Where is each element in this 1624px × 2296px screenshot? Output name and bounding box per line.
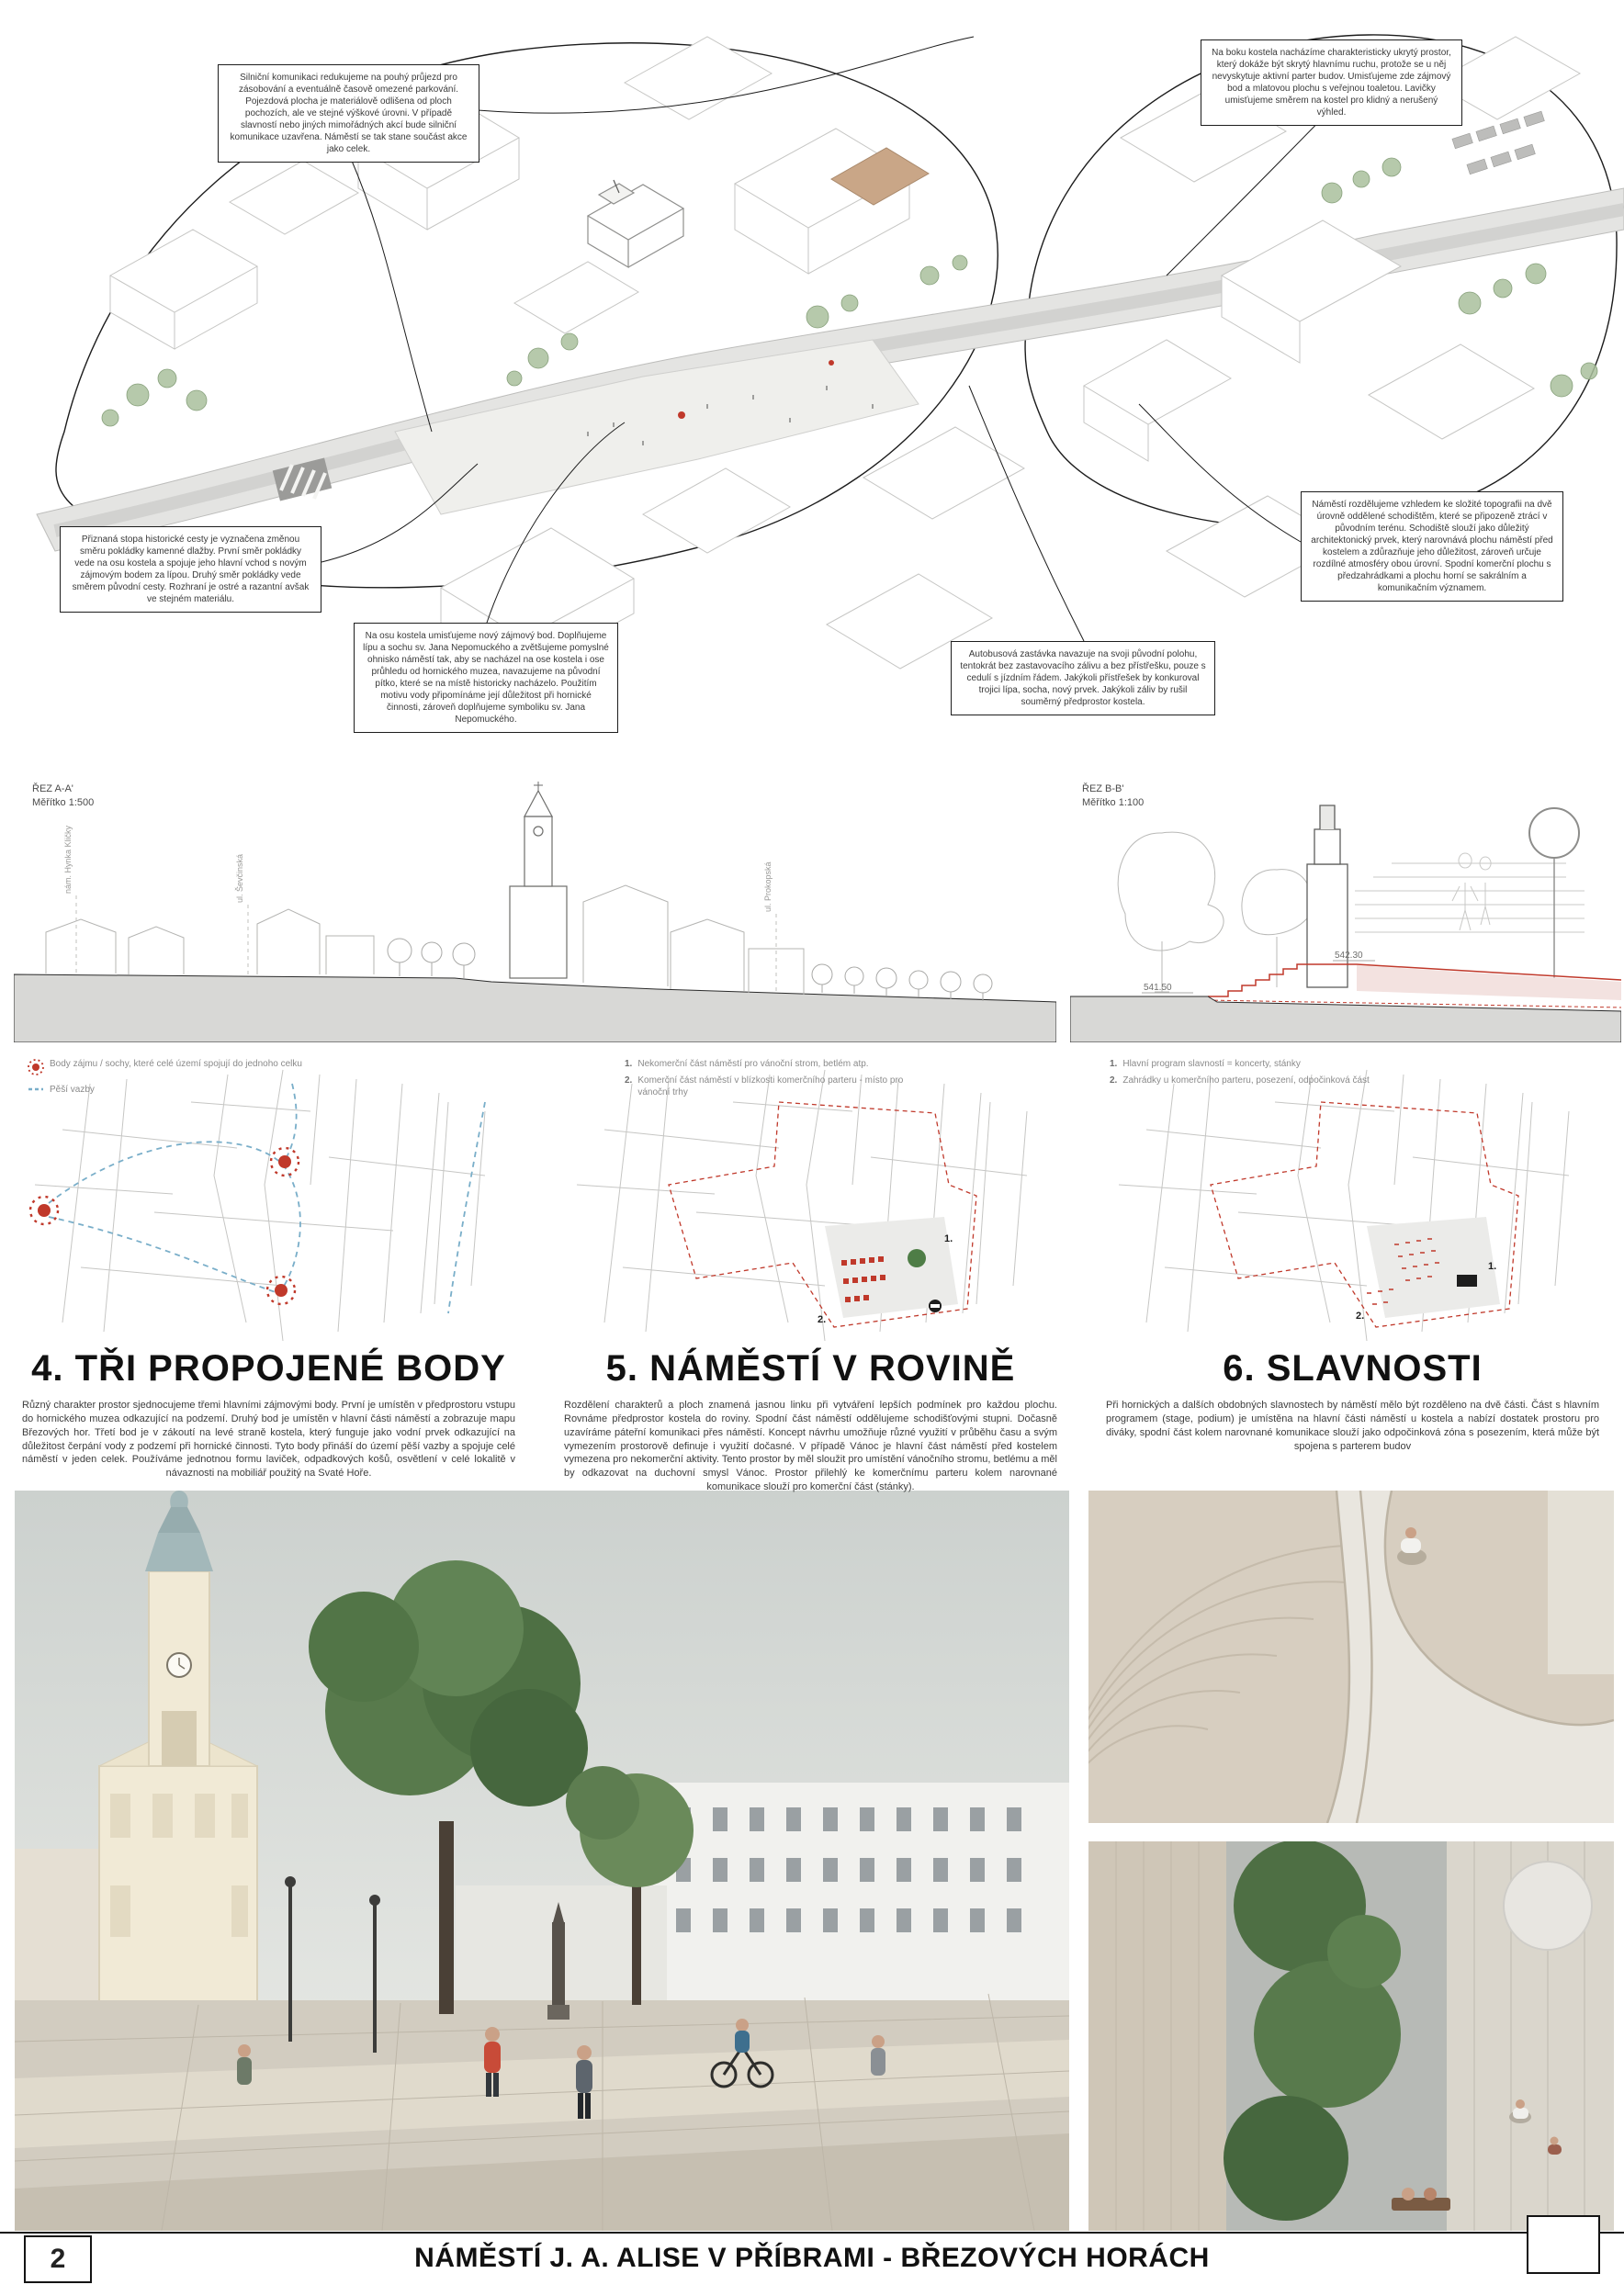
page-number: 2: [51, 2244, 66, 2275]
legend-label: Nekomerční část náměstí pro vánoční stro…: [637, 1058, 868, 1071]
annotation-road: Silniční komunikaci redukujeme na pouhý …: [218, 64, 479, 163]
presentation-board: Silniční komunikaci redukujeme na pouhý …: [0, 0, 1624, 2296]
legend-number: 1.: [1110, 1058, 1117, 1071]
aerial-steps-render: [1088, 1491, 1614, 1823]
board-title: NÁMĚSTÍ J. A. ALISE V PŘÍBRAMI - BŘEZOVÝ…: [0, 2243, 1624, 2274]
section-b-label: ŘEZ B-B' Měřítko 1:100: [1082, 782, 1144, 810]
legend-number: 2.: [1110, 1075, 1117, 1087]
map-marker-2: 2.: [818, 1314, 826, 1325]
elevation-lower-label: 541.50: [1144, 983, 1172, 993]
concept-body: Různý charakter prostor sjednocujeme tře…: [9, 1399, 528, 1480]
elevation-upper-label: 542.30: [1335, 951, 1363, 961]
interest-point-icon: [28, 1059, 44, 1080]
right-stone-band: [1548, 1491, 1614, 1674]
church-plan: [588, 180, 683, 267]
logo-placeholder-box: [1527, 2215, 1600, 2274]
legend-connected-points: Body zájmu / sochy, které celé území spo…: [28, 1058, 331, 1101]
section-b-ring-lamp: [1529, 808, 1579, 992]
section-b-scale: Měřítko 1:100: [1082, 796, 1144, 810]
section-a-scale: Měřítko 1:500: [32, 796, 94, 810]
concept-connected-points: 4. TŘI PROPOJENÉ BODY Různý charakter pr…: [9, 1348, 528, 1480]
section-b-trees: [1118, 832, 1311, 992]
section-a-drawing: nám. Hynka Kličky ul. Ševčinská ul. Prok…: [14, 776, 1056, 1042]
section-a-ground: [14, 974, 1056, 1042]
annotation-bus-stop: Autobusová zastávka navazuje na svoji pů…: [951, 641, 1215, 715]
concept-square-level: 5. NÁMĚSTÍ V ROVINĚ Rozdělení charakterů…: [551, 1348, 1070, 1494]
street-label-3: ul. Prokopská: [763, 861, 773, 912]
annotation-hidden-space: Na boku kostela nacházíme charakteristic…: [1201, 39, 1462, 126]
aerial-street-render: [1088, 1841, 1614, 2231]
section-a-label: ŘEZ A-A' Měřítko 1:500: [32, 782, 94, 810]
concept-heading: 4. TŘI PROPOJENÉ BODY: [9, 1348, 528, 1390]
no-entry-sign: [929, 1300, 942, 1312]
section-b-background-stairs: [1355, 853, 1585, 932]
concept-body: Při hornických a dalších obdobných slavn…: [1093, 1399, 1612, 1453]
stage-rectangle: [1457, 1275, 1477, 1287]
christmas-tree: [908, 1249, 926, 1267]
page-number-box: 2: [24, 2235, 92, 2283]
street-label-1: nám. Hynka Kličky: [63, 825, 73, 894]
legend-number: 1.: [625, 1058, 632, 1071]
concept-body: Rozdělení charakterů a ploch znamená jas…: [551, 1399, 1070, 1494]
left-cobble-band: [1088, 1841, 1226, 2231]
section-a-church: [510, 782, 567, 978]
street-label-2: ul. Ševčinská: [235, 854, 244, 903]
legend-label: Komerční část náměstí v blízkosti komerč…: [637, 1075, 928, 1099]
section-b-hatch-area: [1357, 965, 1621, 1000]
section-b-ground: [1070, 996, 1621, 1042]
legend-label: Zahrádky u komerčního parteru, posezení,…: [1122, 1075, 1369, 1087]
annotation-axis-point: Na osu kostela umisťujeme nový zájmový b…: [354, 623, 618, 733]
concept-heading: 6. SLAVNOSTI: [1093, 1348, 1612, 1390]
legend-label: Hlavní program slavností = koncerty, stá…: [1122, 1058, 1301, 1071]
legend-christmas: 1. Nekomerční část náměstí pro vánoční s…: [625, 1058, 928, 1103]
legend-label: Pěší vazby: [50, 1084, 95, 1097]
legend-label: Body zájmu / sochy, které celé území spo…: [50, 1058, 302, 1071]
interest-point-markers: [30, 1148, 299, 1304]
map-marker-1: 1.: [1488, 1261, 1496, 1272]
annotation-two-levels: Náměstí rozdělujeme vzhledem ke složité …: [1301, 491, 1563, 602]
annotation-historic-path: Přiznaná stopa historické cesty je vyzna…: [60, 526, 321, 613]
map-marker-1: 1.: [944, 1233, 953, 1244]
pedestrian-links: [49, 1084, 485, 1313]
section-b-drawing: 542.30 541.50: [1070, 776, 1621, 1042]
circular-feature: [1504, 1862, 1592, 1950]
concept-heading: 5. NÁMĚSTÍ V ROVINĚ: [551, 1348, 1070, 1390]
legend-festivities: 1. Hlavní program slavností = koncerty, …: [1110, 1058, 1413, 1090]
pedestrian-link-icon: [28, 1085, 44, 1098]
legend-number: 2.: [625, 1075, 632, 1087]
section-a-title: ŘEZ A-A': [32, 782, 94, 796]
map-marker-2: 2.: [1356, 1311, 1364, 1322]
parking-cars: [1452, 111, 1544, 174]
diagram-festivities: 1. 2.: [1091, 1047, 1615, 1350]
footer-divider: [0, 2232, 1624, 2234]
background-building-right: [648, 1783, 1069, 2012]
section-b-title: ŘEZ B-B': [1082, 782, 1144, 796]
concept-festivities: 6. SLAVNOSTI Při hornických a dalších ob…: [1093, 1348, 1612, 1453]
main-square-render: [15, 1491, 1069, 2231]
